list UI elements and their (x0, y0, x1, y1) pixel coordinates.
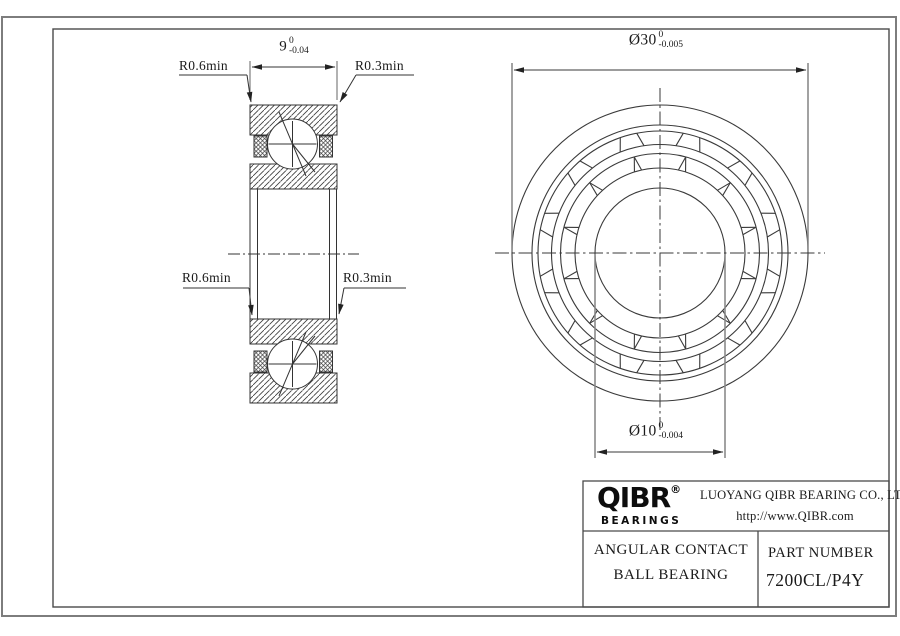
part-number-label: PART NUMBER (768, 546, 874, 561)
section-top-half (250, 105, 337, 189)
company-name: LUOYANG QIBR BEARING CO., LTD (700, 489, 890, 502)
tolerance-stack: 0-0.005 (659, 30, 684, 51)
radius-label-bottom-right: R0.3min (343, 271, 392, 285)
qibr-logo: QIBR® (597, 484, 681, 512)
radius-label-top-left: R0.6min (179, 59, 228, 73)
radius-label-bottom-left: R0.6min (182, 271, 231, 285)
engineering-drawing-page: 90-0.04 R0.6min R0.3min R0.6min R0.3min … (0, 0, 900, 636)
cage-section (254, 351, 267, 372)
cage-section (320, 351, 333, 372)
drawing-linework (0, 0, 900, 636)
qibr-logo-subtext: BEARINGS (601, 516, 681, 527)
width-dimension-label: 90-0.04 (248, 36, 340, 57)
page-frame-outer (2, 17, 896, 616)
bore-diameter-label: Ø100-0.004 (563, 421, 749, 442)
page-frame (2, 17, 896, 616)
tolerance-stack: 0-0.004 (659, 421, 684, 442)
section-bottom-half (250, 319, 337, 403)
registered-mark-icon: ® (670, 483, 681, 496)
product-name-line1: ANGULAR CONTACT (584, 543, 758, 559)
product-name-line2: BALL BEARING (584, 568, 758, 584)
bearing-cross-section-view (179, 61, 414, 403)
width-dimension (250, 61, 337, 100)
company-website: http://www.QIBR.com (700, 510, 890, 523)
cage-section (320, 136, 333, 157)
cage-section (254, 136, 267, 157)
outer-diameter-label: Ø300-0.005 (563, 30, 749, 51)
bearing-front-view (495, 63, 825, 458)
radius-label-top-right: R0.3min (355, 59, 404, 73)
tolerance-stack: 0-0.04 (289, 36, 309, 57)
part-number-value: 7200CL/P4Y (766, 571, 864, 589)
